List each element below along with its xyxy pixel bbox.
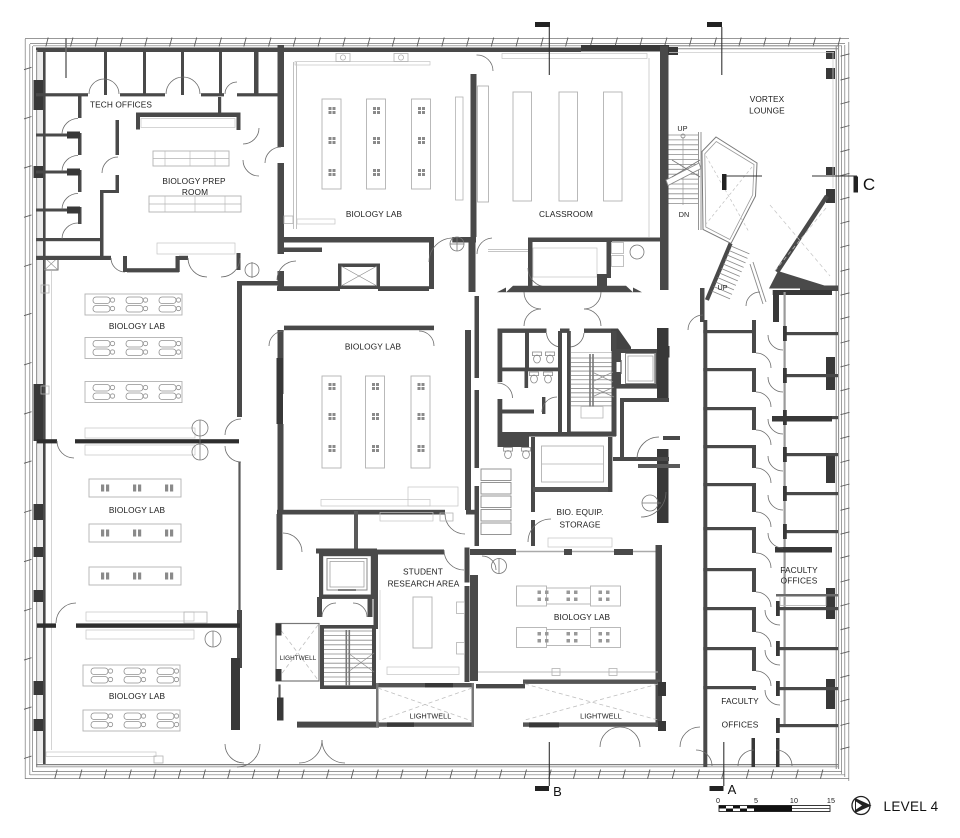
svg-text:BIOLOGY LAB: BIOLOGY LAB — [109, 321, 166, 331]
svg-text:LEVEL 4: LEVEL 4 — [884, 799, 939, 814]
svg-text:STORAGE: STORAGE — [559, 520, 600, 530]
svg-text:B: B — [553, 784, 562, 799]
svg-text:A: A — [728, 782, 737, 797]
svg-text:BIOLOGY LAB: BIOLOGY LAB — [554, 612, 611, 622]
svg-text:UP: UP — [718, 283, 728, 292]
svg-text:UP: UP — [677, 124, 687, 133]
svg-text:C: C — [863, 175, 875, 194]
svg-text:CLASSROOM: CLASSROOM — [539, 209, 593, 219]
svg-text:ROOM: ROOM — [182, 187, 208, 197]
svg-text:RESEARCH AREA: RESEARCH AREA — [388, 579, 460, 589]
svg-text:LIGHTWELL: LIGHTWELL — [580, 712, 622, 721]
svg-text:BIO. EQUIP.: BIO. EQUIP. — [556, 507, 603, 517]
svg-text:STUDENT: STUDENT — [403, 567, 443, 577]
svg-text:15: 15 — [827, 796, 835, 805]
svg-text:DN: DN — [679, 210, 690, 219]
svg-text:0: 0 — [716, 796, 720, 805]
svg-text:FACULTY: FACULTY — [721, 696, 759, 706]
svg-text:BIOLOGY LAB: BIOLOGY LAB — [109, 691, 166, 701]
svg-text:VORTEX: VORTEX — [750, 94, 785, 104]
svg-text:LOUNGE: LOUNGE — [749, 106, 785, 116]
svg-text:BIOLOGY LAB: BIOLOGY LAB — [109, 505, 166, 515]
svg-text:LIGHTWELL: LIGHTWELL — [410, 712, 452, 721]
svg-text:BIOLOGY PREP: BIOLOGY PREP — [162, 176, 226, 186]
svg-text:OFFICES: OFFICES — [781, 576, 818, 586]
svg-text:OFFICES: OFFICES — [722, 720, 759, 730]
svg-text:10: 10 — [790, 796, 798, 805]
svg-text:BIOLOGY LAB: BIOLOGY LAB — [346, 209, 403, 219]
svg-text:BIOLOGY LAB: BIOLOGY LAB — [345, 342, 402, 352]
svg-text:5: 5 — [754, 796, 758, 805]
svg-text:LIGHTWELL: LIGHTWELL — [280, 655, 317, 662]
svg-text:TECH OFFICES: TECH OFFICES — [90, 100, 152, 110]
svg-text:FACULTY: FACULTY — [780, 565, 818, 575]
